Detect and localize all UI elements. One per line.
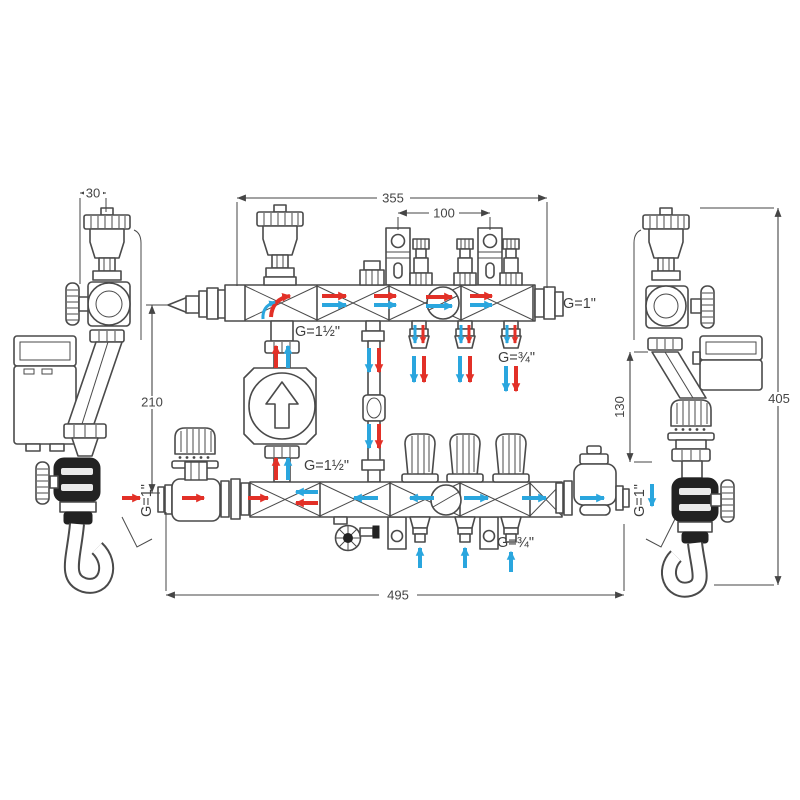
union-nut xyxy=(60,502,96,512)
valve-cap xyxy=(64,512,92,524)
port-label-outlet: G=1" xyxy=(632,484,648,517)
union-nut xyxy=(265,341,299,353)
manifold-body xyxy=(250,482,562,517)
flow-meter-icon xyxy=(454,239,476,285)
manifold-technical-drawing: 30 355 100 210 130 405 xyxy=(0,0,800,800)
dim-label-210: 210 xyxy=(141,395,163,410)
thermostatic-head-icon xyxy=(668,400,714,440)
shutoff-valve xyxy=(66,282,130,326)
adapter xyxy=(676,440,706,449)
dim-label-355: 355 xyxy=(382,191,404,206)
sight-glass xyxy=(363,395,385,421)
dim-label-130: 130 xyxy=(612,396,627,418)
port-label-riser-bottom: G=1½" xyxy=(304,458,349,474)
port-label-loop-supply: G=¾" xyxy=(498,350,535,366)
port-label-top-right: G=1" xyxy=(563,296,596,312)
loop-actuator-icon xyxy=(402,434,438,482)
shutoff-valve xyxy=(646,286,714,328)
loop-outlet xyxy=(455,321,475,348)
flow-meter-icon xyxy=(500,239,522,285)
dim-label-30: 30 xyxy=(86,186,100,201)
mounting-bracket-left xyxy=(386,228,410,285)
port-label-inlet: G=1" xyxy=(139,484,155,517)
loop-outlet xyxy=(409,321,429,348)
union-nut xyxy=(648,338,682,350)
dim-label-100: 100 xyxy=(433,206,455,221)
side-handwheel-icon xyxy=(701,286,714,328)
mounting-bracket-right xyxy=(478,228,502,285)
bracket-hole xyxy=(392,235,405,248)
union-nut xyxy=(265,446,299,458)
bracket-hole xyxy=(484,235,497,248)
ball-valve-icon xyxy=(54,458,100,502)
dim-label-405: 405 xyxy=(768,391,790,406)
loop-actuator-icon xyxy=(447,434,483,482)
side-handwheel-icon xyxy=(66,283,79,325)
dim-label-495: 495 xyxy=(387,588,409,603)
valve-neck xyxy=(682,461,702,478)
port-label-loop-return: G=¾" xyxy=(497,535,534,551)
fill-valve-cap xyxy=(360,261,384,285)
side-handwheel-icon xyxy=(721,480,734,522)
loop-outlet xyxy=(501,321,521,348)
flow-meter-icon xyxy=(410,239,432,285)
bracket-tab-left xyxy=(388,517,406,549)
loop-actuator-icon xyxy=(493,434,529,482)
pump-motor-box xyxy=(693,336,762,390)
bracket-tab-right xyxy=(480,517,498,549)
valve-cap xyxy=(682,532,708,543)
side-handwheel-icon xyxy=(36,462,49,504)
union-nut xyxy=(678,522,712,532)
port-label-riser-top: G=1½" xyxy=(295,324,340,340)
drawing-page: 30 355 100 210 130 405 xyxy=(0,0,800,800)
union-nut xyxy=(90,330,124,342)
